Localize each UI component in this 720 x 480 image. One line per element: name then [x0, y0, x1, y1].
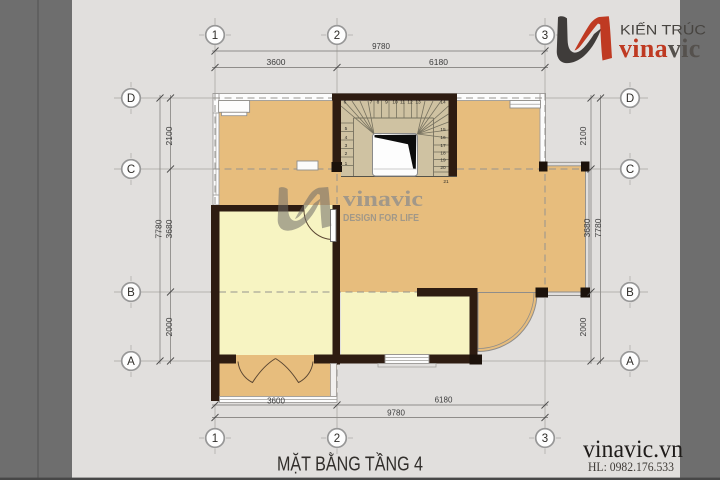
- svg-text:2: 2: [345, 151, 348, 157]
- svg-text:B: B: [626, 287, 634, 299]
- svg-text:17: 17: [440, 143, 446, 149]
- svg-text:5: 5: [345, 126, 348, 132]
- svg-text:A: A: [127, 356, 135, 368]
- svg-text:2: 2: [334, 433, 340, 445]
- svg-text:C: C: [127, 164, 135, 176]
- svg-text:7780: 7780: [154, 219, 164, 238]
- svg-text:2100: 2100: [164, 126, 174, 145]
- svg-text:3: 3: [542, 30, 548, 42]
- svg-text:3600: 3600: [267, 397, 285, 406]
- svg-text:3680: 3680: [164, 219, 174, 238]
- svg-text:1: 1: [212, 433, 218, 445]
- svg-text:10: 10: [392, 100, 398, 106]
- svg-text:A: A: [626, 356, 634, 368]
- svg-text:21: 21: [443, 179, 449, 185]
- svg-text:B: B: [127, 287, 135, 299]
- svg-text:vinavic: vinavic: [619, 34, 701, 63]
- svg-text:6: 6: [344, 100, 347, 106]
- svg-text:12: 12: [407, 100, 413, 106]
- svg-text:2000: 2000: [578, 317, 588, 336]
- svg-text:vinavic.vn: vinavic.vn: [583, 436, 683, 463]
- svg-text:16: 16: [440, 135, 446, 141]
- svg-text:3680: 3680: [582, 218, 592, 237]
- svg-text:DESIGN FOR LIFE: DESIGN FOR LIFE: [343, 212, 419, 224]
- svg-text:3: 3: [542, 433, 548, 445]
- svg-text:7780: 7780: [593, 218, 603, 237]
- svg-text:2100: 2100: [578, 126, 588, 145]
- svg-text:D: D: [127, 93, 135, 105]
- svg-text:D: D: [626, 93, 634, 105]
- svg-text:C: C: [626, 164, 634, 176]
- svg-text:18: 18: [440, 151, 446, 157]
- svg-text:6180: 6180: [435, 396, 453, 405]
- svg-text:19: 19: [440, 158, 446, 164]
- svg-text:13: 13: [415, 100, 421, 106]
- svg-text:9780: 9780: [387, 409, 405, 418]
- svg-text:2000: 2000: [164, 317, 174, 336]
- svg-text:6180: 6180: [429, 57, 448, 67]
- svg-text:8: 8: [377, 100, 380, 106]
- svg-text:1: 1: [345, 161, 348, 167]
- svg-text:7: 7: [370, 100, 373, 106]
- svg-text:3: 3: [345, 143, 348, 149]
- svg-text:14: 14: [440, 100, 446, 106]
- svg-text:HL: 0982.176.533: HL: 0982.176.533: [588, 460, 674, 474]
- svg-text:15: 15: [440, 127, 446, 133]
- svg-text:20: 20: [440, 165, 446, 171]
- svg-text:9780: 9780: [372, 42, 390, 51]
- svg-text:11: 11: [400, 100, 405, 106]
- svg-text:2: 2: [334, 30, 340, 42]
- svg-text:MẶT BẰNG TẦNG 4: MẶT BẰNG TẦNG 4: [277, 452, 423, 476]
- svg-text:9: 9: [385, 100, 388, 106]
- svg-text:3600: 3600: [267, 57, 286, 67]
- svg-text:vinavic: vinavic: [343, 186, 423, 211]
- svg-text:4: 4: [345, 135, 348, 141]
- svg-text:1: 1: [212, 30, 218, 42]
